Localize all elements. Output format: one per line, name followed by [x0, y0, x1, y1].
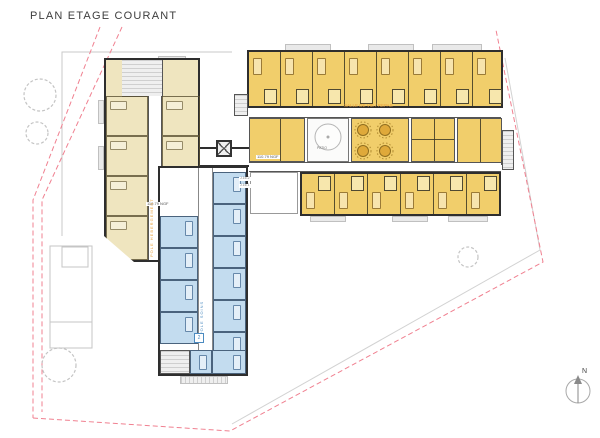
elevator [216, 140, 232, 157]
north-label: N [582, 368, 587, 376]
balcony [448, 216, 488, 222]
wall [280, 119, 281, 161]
care-room [213, 268, 246, 300]
tree-icon [26, 122, 48, 144]
tree-icon [42, 348, 76, 382]
wall [480, 119, 481, 164]
wall [412, 139, 454, 140]
bedroom [302, 174, 335, 214]
east-stairwell [502, 130, 514, 170]
care-room [213, 300, 246, 332]
bedroom [441, 52, 473, 106]
care-room [213, 236, 246, 268]
wall [434, 119, 435, 161]
patio [307, 118, 349, 162]
bedroom [377, 52, 409, 106]
terrace [250, 172, 298, 214]
tree-icon [24, 79, 56, 111]
stairwell [122, 60, 163, 97]
balcony [310, 216, 346, 222]
bedroom [162, 96, 200, 136]
north-arrow-icon [566, 375, 590, 403]
window-ledge [98, 146, 104, 170]
joint-ref-top: J.16.2 [239, 177, 251, 181]
bedroom [467, 174, 500, 214]
care-room [160, 216, 198, 248]
bedroom [106, 96, 148, 136]
patio-label: PATIO [317, 147, 327, 151]
level-annotation: 110.79 NGF [256, 155, 280, 159]
exterior-steps [180, 376, 228, 384]
tree-icon [458, 247, 478, 267]
care-room [160, 248, 198, 280]
care-wing [158, 166, 248, 376]
bedroom [106, 176, 148, 216]
floorplan-canvas: PLAN ETAGE COURANT SALLE DE VIE / REPAS … [0, 0, 600, 438]
bedroom [106, 136, 148, 176]
north-corridor [249, 108, 501, 118]
east-service-rooms [457, 118, 502, 165]
page-title: PLAN ETAGE COURANT [30, 10, 177, 22]
stairwell [160, 350, 190, 374]
south-bedroom-bar [300, 172, 501, 216]
dining-unit-label: SALLE DE VIE / REPAS [344, 104, 393, 109]
joint-ref-bottom: J.16.1 [239, 184, 251, 188]
dining-room [351, 118, 409, 162]
entry-steps [234, 94, 248, 116]
bedroom [281, 52, 313, 106]
service-block [411, 118, 455, 162]
bedroom [368, 174, 401, 214]
care-room [213, 204, 246, 236]
boundary-line-west-outer [33, 27, 100, 418]
south-corridor [249, 162, 501, 172]
north-bedroom-bar [247, 50, 503, 108]
bedroom [345, 52, 377, 106]
bedroom [401, 174, 434, 214]
ground-floor-notch [62, 247, 88, 267]
care-room [160, 280, 198, 312]
bedroom [249, 52, 281, 106]
bedroom [473, 52, 505, 106]
stair-marker-badge: 2 [194, 333, 204, 343]
bedroom [409, 52, 441, 106]
accommodation-unit-label: POLE HEBERGEMENT [150, 195, 154, 257]
care-unit-label: POLE SOINS [200, 285, 204, 335]
care-wing-corridor [198, 168, 213, 374]
care-room [212, 350, 246, 374]
bedroom [313, 52, 345, 106]
window-ledge [98, 100, 104, 124]
balcony [392, 216, 428, 222]
care-room [190, 350, 212, 374]
bedroom [335, 174, 368, 214]
bedroom [434, 174, 467, 214]
care-room [213, 332, 246, 352]
ground-floor-outline [50, 246, 92, 348]
care-room [160, 312, 198, 344]
